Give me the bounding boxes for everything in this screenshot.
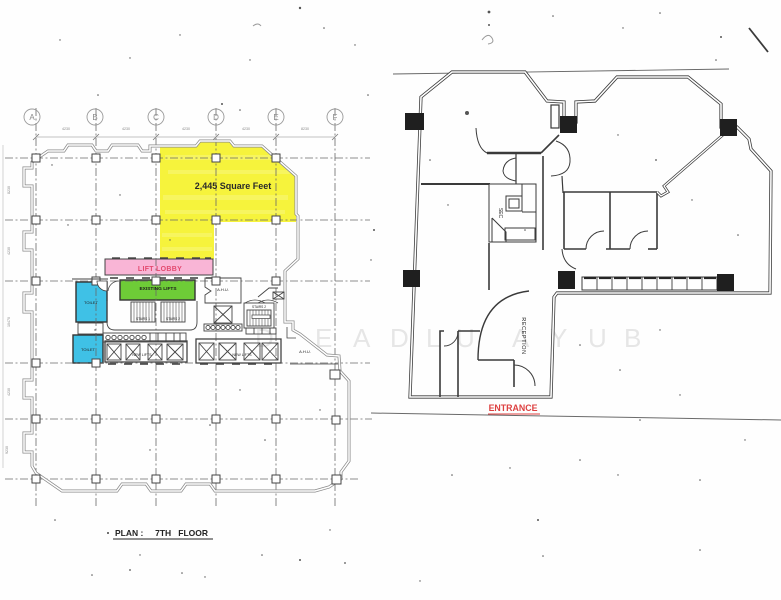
- svg-text:STAIRS 2: STAIRS 2: [166, 317, 180, 321]
- svg-text:4230: 4230: [62, 127, 70, 131]
- svg-text:NEW LIFTS: NEW LIFTS: [232, 353, 252, 357]
- svg-text:B: B: [92, 113, 97, 122]
- svg-text:A: A: [29, 113, 35, 122]
- svg-text:C: C: [153, 113, 159, 122]
- svg-text:A.H.U.: A.H.U.: [299, 349, 311, 354]
- svg-text:4230: 4230: [7, 247, 11, 255]
- svg-text:F: F: [333, 113, 338, 122]
- svg-text:D: D: [255, 323, 274, 353]
- svg-text:NEW LIFTS: NEW LIFTS: [132, 353, 152, 357]
- svg-text:4230: 4230: [182, 127, 190, 131]
- svg-text:STAIRS 1: STAIRS 1: [136, 317, 150, 321]
- svg-text:4230: 4230: [122, 127, 130, 131]
- svg-text:U: U: [588, 323, 607, 353]
- svg-text:9230: 9230: [5, 446, 9, 454]
- svg-text:10470: 10470: [7, 317, 11, 327]
- svg-text:STAIRS 2: STAIRS 2: [252, 305, 266, 309]
- svg-text:EXISTING LIFTS: EXISTING LIFTS: [139, 286, 177, 292]
- svg-text:2,445 Square Feet: 2,445 Square Feet: [195, 181, 272, 191]
- svg-text:SEC: SEC: [497, 208, 503, 219]
- svg-text:D: D: [390, 323, 409, 353]
- svg-text:8230: 8230: [7, 186, 11, 194]
- svg-text:A.H.U.: A.H.U.: [217, 287, 229, 292]
- svg-text:LIFT LOBBY: LIFT LOBBY: [138, 266, 182, 273]
- svg-text:D: D: [213, 113, 219, 122]
- svg-text:E: E: [273, 113, 278, 122]
- svg-text:4230: 4230: [7, 388, 11, 396]
- svg-text:4230: 4230: [242, 127, 250, 131]
- svg-text:TOILET: TOILET: [84, 300, 98, 305]
- svg-text:ENTRANCE: ENTRANCE: [489, 403, 538, 413]
- svg-text:PLAN : 7TH FLOOR: PLAN : 7TH FLOOR: [115, 528, 208, 538]
- svg-text:RECEPTION: RECEPTION: [520, 317, 526, 355]
- svg-text:A: A: [353, 323, 371, 353]
- svg-text:B: B: [624, 323, 641, 353]
- svg-text:L: L: [426, 323, 440, 353]
- svg-text:8230: 8230: [301, 127, 309, 131]
- svg-text:U: U: [456, 323, 475, 353]
- svg-text:TOILET: TOILET: [81, 347, 95, 352]
